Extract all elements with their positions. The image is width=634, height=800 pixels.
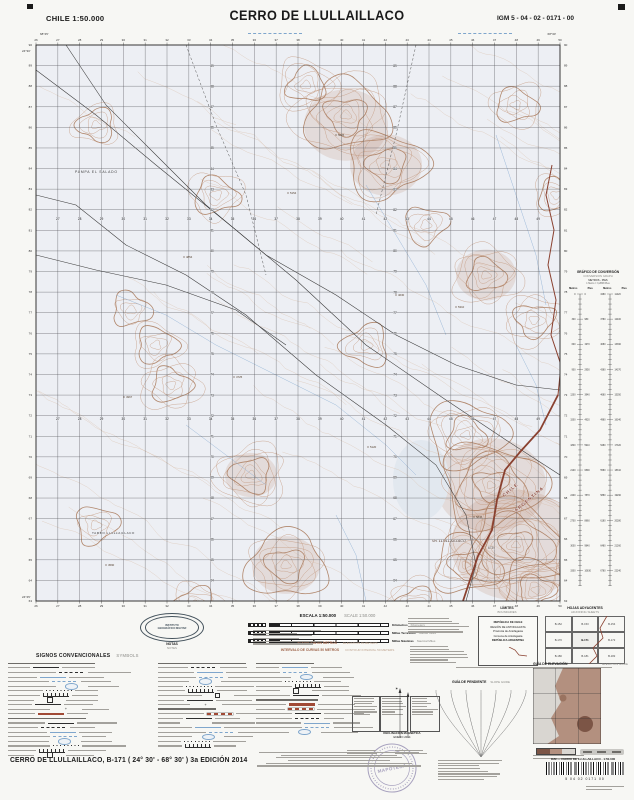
svg-text:43: 43 <box>405 217 409 221</box>
svg-text:300: 300 <box>572 319 577 321</box>
svg-text:31: 31 <box>143 417 147 421</box>
svg-text:72: 72 <box>393 414 397 418</box>
svg-text:6180: 6180 <box>600 520 606 522</box>
svg-text:90: 90 <box>564 43 568 47</box>
svg-text:71: 71 <box>29 434 33 438</box>
svg-text:39: 39 <box>318 417 322 421</box>
svg-text:45: 45 <box>449 417 453 421</box>
svg-text:80: 80 <box>564 249 568 253</box>
conversion-note: 1 Metro = 3,2808 Pies <box>564 282 632 285</box>
svg-text:4590: 4590 <box>108 563 115 567</box>
svg-text:40: 40 <box>340 217 344 221</box>
svg-text:50: 50 <box>558 38 562 42</box>
svg-text:75: 75 <box>29 352 33 356</box>
svg-text:27: 27 <box>56 604 60 608</box>
svg-text:15350: 15350 <box>615 395 622 397</box>
slope-guide-heading: GUÍA DE PENDIENTE SLOPE GUIDE <box>430 680 532 684</box>
svg-text:43: 43 <box>405 604 409 608</box>
svg-text:36: 36 <box>253 217 257 221</box>
svg-text:68: 68 <box>210 496 214 500</box>
svg-text:35: 35 <box>231 604 235 608</box>
svg-text:5005: 5005 <box>338 133 345 137</box>
svg-text:44: 44 <box>427 38 431 42</box>
svg-text:5310: 5310 <box>458 305 465 309</box>
svg-text:77: 77 <box>29 311 33 315</box>
edition-fine-print <box>253 752 425 768</box>
contour-interval-heading: INTERVALO DE CURVAS 50 METROS CONTOUR IN… <box>250 648 425 652</box>
svg-text:89: 89 <box>29 64 33 68</box>
svg-text:87: 87 <box>393 105 397 109</box>
svg-text:44: 44 <box>427 217 431 221</box>
igm-seal: INSTITUTOGEOGRÁFICO MILITAR <box>140 613 204 642</box>
svg-text:70: 70 <box>29 455 33 459</box>
svg-text:17320: 17320 <box>615 445 622 447</box>
elevation-ramp <box>536 748 576 755</box>
svg-text:2700: 2700 <box>570 520 576 522</box>
legend-symbols-column-3 <box>256 661 350 735</box>
svg-text:44: 44 <box>427 417 431 421</box>
svg-text:38: 38 <box>296 604 300 608</box>
svg-text:980: 980 <box>585 319 590 321</box>
svg-text:37: 37 <box>274 417 278 421</box>
svg-text:46: 46 <box>471 604 475 608</box>
svg-text:4920: 4920 <box>585 420 591 422</box>
svg-text:29: 29 <box>100 217 104 221</box>
svg-text:41: 41 <box>362 604 366 608</box>
svg-text:27: 27 <box>56 417 60 421</box>
svg-text:64: 64 <box>210 579 214 583</box>
svg-text:87: 87 <box>210 105 214 109</box>
svg-text:90: 90 <box>29 43 33 47</box>
svg-text:5120: 5120 <box>370 445 377 449</box>
svg-text:72: 72 <box>210 414 214 418</box>
svg-text:36: 36 <box>253 604 257 608</box>
svg-text:85: 85 <box>393 146 397 150</box>
svg-text:81: 81 <box>210 229 214 233</box>
svg-text:34: 34 <box>209 38 213 42</box>
svg-text:41: 41 <box>362 417 366 421</box>
svg-text:600: 600 <box>572 344 577 346</box>
svg-text:88: 88 <box>393 84 397 88</box>
svg-text:30: 30 <box>122 217 126 221</box>
svg-text:78: 78 <box>393 290 397 294</box>
svg-text:74: 74 <box>29 372 33 376</box>
svg-text:19290: 19290 <box>615 495 622 497</box>
svg-text:45: 45 <box>449 604 453 608</box>
svg-text:4980: 4980 <box>600 420 606 422</box>
svg-text:41: 41 <box>362 217 366 221</box>
svg-text:42: 42 <box>384 417 388 421</box>
declination-note-box <box>352 696 380 732</box>
svg-text:1970: 1970 <box>585 344 591 346</box>
svg-text:32: 32 <box>165 217 169 221</box>
footer-sticker <box>580 749 624 755</box>
svg-text:85: 85 <box>210 146 214 150</box>
svg-text:38: 38 <box>296 417 300 421</box>
svg-text:76: 76 <box>393 331 397 335</box>
svg-text:49: 49 <box>536 604 540 608</box>
svg-text:33: 33 <box>187 604 191 608</box>
svg-text:14370: 14370 <box>615 369 622 371</box>
svg-text:5880: 5880 <box>600 495 606 497</box>
svg-text:81: 81 <box>564 228 568 232</box>
svg-text:74: 74 <box>393 373 397 377</box>
svg-text:84: 84 <box>564 167 568 171</box>
svg-text:39: 39 <box>318 217 322 221</box>
barcode <box>546 762 624 775</box>
svg-text:43: 43 <box>405 38 409 42</box>
svg-text:28: 28 <box>78 38 82 42</box>
svg-text:83: 83 <box>393 187 397 191</box>
elevation-guide-map <box>533 668 601 744</box>
svg-text:68: 68 <box>29 496 33 500</box>
svg-text:69: 69 <box>29 475 33 479</box>
fine-print-block <box>438 760 508 782</box>
svg-text:81: 81 <box>29 228 33 232</box>
svg-text:44: 44 <box>427 604 431 608</box>
svg-text:2400: 2400 <box>570 495 576 497</box>
svg-text:49: 49 <box>536 217 540 221</box>
svg-text:✶: ✶ <box>395 686 398 691</box>
svg-text:11420: 11420 <box>615 294 622 296</box>
barcode-label: IGM — CERRO DE LLULLAILLACO - 1:50.000 <box>538 757 628 761</box>
svg-text:5154: 5154 <box>290 191 297 195</box>
svg-text:73: 73 <box>210 393 214 397</box>
svg-text:86: 86 <box>210 126 214 130</box>
svg-text:37: 37 <box>274 604 278 608</box>
svg-text:29: 29 <box>100 417 104 421</box>
legend-symbols-column-1: + <box>8 661 156 757</box>
svg-text:3000: 3000 <box>570 545 576 547</box>
svg-text:29: 29 <box>100 38 104 42</box>
svg-text:26: 26 <box>34 604 38 608</box>
conversion-subtitle: CONVERSION GRAPH <box>564 274 632 278</box>
svg-text:67: 67 <box>29 517 33 521</box>
svg-text:3300: 3300 <box>570 571 576 573</box>
svg-text:30: 30 <box>122 417 126 421</box>
svg-text:32: 32 <box>165 604 169 608</box>
svg-text:65: 65 <box>210 558 214 562</box>
svg-text:69: 69 <box>210 476 214 480</box>
corner-registration-mark <box>618 4 625 10</box>
svg-text:900: 900 <box>572 369 577 371</box>
adjoining-sheets-heading: HOJAS ADYACENTES ADJOINING SHEETS <box>543 606 627 614</box>
svg-text:3940: 3940 <box>585 395 591 397</box>
svg-text:72: 72 <box>29 414 33 418</box>
svg-text:71: 71 <box>210 434 214 438</box>
svg-text:20280: 20280 <box>615 520 622 522</box>
svg-text:40: 40 <box>340 417 344 421</box>
svg-text:67: 67 <box>210 517 214 521</box>
fine-print-block <box>410 646 468 665</box>
boundary-sketch-line <box>479 647 537 657</box>
svg-text:82: 82 <box>564 208 568 212</box>
svg-text:66: 66 <box>29 537 33 541</box>
svg-text:4080: 4080 <box>600 344 606 346</box>
svg-text:46: 46 <box>471 417 475 421</box>
svg-text:82: 82 <box>210 208 214 212</box>
svg-text:9840: 9840 <box>585 545 591 547</box>
boundaries-heading: LÍMITES BOUNDARIES <box>478 606 536 614</box>
svg-text:68°30': 68°30' <box>548 32 557 36</box>
svg-text:18310: 18310 <box>615 470 622 472</box>
map-sheet: CHILE 1:50.000 CERRO DE LLULLAILLACO IGM… <box>0 0 634 800</box>
svg-text:4630: 4630 <box>398 293 405 297</box>
scale-heading: ESCALA 1:50.000 SCALE 1:50.000 <box>250 613 425 618</box>
svg-text:41: 41 <box>362 38 366 42</box>
svg-text:85: 85 <box>29 146 33 150</box>
svg-text:6480: 6480 <box>600 545 606 547</box>
svg-text:16340: 16340 <box>615 420 622 422</box>
svg-text:83: 83 <box>210 187 214 191</box>
svg-text:32: 32 <box>165 417 169 421</box>
svg-text:69: 69 <box>393 476 397 480</box>
svg-text:31: 31 <box>143 38 147 42</box>
svg-text:6890: 6890 <box>585 470 591 472</box>
svg-text:88: 88 <box>210 84 214 88</box>
svg-text:1500: 1500 <box>570 420 576 422</box>
svg-text:47: 47 <box>493 417 497 421</box>
svg-text:5280: 5280 <box>600 445 606 447</box>
fine-print-block <box>408 618 472 634</box>
svg-text:30: 30 <box>122 604 126 608</box>
svg-text:47: 47 <box>493 217 497 221</box>
svg-text:36: 36 <box>253 38 257 42</box>
svg-text:27: 27 <box>56 38 60 42</box>
svg-text:79: 79 <box>210 270 214 274</box>
svg-text:35: 35 <box>231 217 235 221</box>
svg-text:48: 48 <box>515 417 519 421</box>
svg-text:36: 36 <box>253 417 257 421</box>
svg-text:Vn. LLULLAILLACO: Vn. LLULLAILLACO <box>432 539 466 543</box>
svg-text:73: 73 <box>393 393 397 397</box>
svg-text:79: 79 <box>393 270 397 274</box>
svg-text:85: 85 <box>564 146 568 150</box>
svg-text:1200: 1200 <box>570 395 576 397</box>
legend-heading: SIGNOS CONVENCIONALESSYMBOLS <box>36 653 139 659</box>
svg-text:28: 28 <box>78 217 82 221</box>
svg-text:45: 45 <box>449 217 453 221</box>
svg-text:38: 38 <box>296 217 300 221</box>
svg-text:66: 66 <box>393 537 397 541</box>
svg-text:42: 42 <box>384 604 388 608</box>
svg-text:13390: 13390 <box>615 344 622 346</box>
svg-text:46: 46 <box>471 217 475 221</box>
svg-text:8860: 8860 <box>585 520 591 522</box>
svg-text:86: 86 <box>564 125 568 129</box>
svg-text:88: 88 <box>29 84 33 88</box>
svg-text:84: 84 <box>29 167 33 171</box>
svg-text:77: 77 <box>210 311 214 315</box>
svg-text:26: 26 <box>34 38 38 42</box>
svg-text:67: 67 <box>393 517 397 521</box>
svg-text:89: 89 <box>393 64 397 68</box>
svg-text:4680: 4680 <box>600 395 606 397</box>
notes-fine-print <box>253 630 331 646</box>
svg-text:84: 84 <box>210 167 214 171</box>
svg-text:78: 78 <box>29 290 33 294</box>
svg-text:86: 86 <box>393 126 397 130</box>
svg-text:65: 65 <box>29 558 33 562</box>
svg-text:83: 83 <box>29 187 33 191</box>
svg-text:0: 0 <box>585 294 587 296</box>
svg-text:79: 79 <box>29 270 33 274</box>
svg-text:63: 63 <box>29 599 33 603</box>
svg-text:49: 49 <box>536 38 540 42</box>
svg-text:48: 48 <box>515 217 519 221</box>
conversion-graph-panel: GRÁFICO DE CONVERSIÓN CONVERSION GRAPH M… <box>564 270 632 605</box>
svg-text:37: 37 <box>274 38 278 42</box>
svg-text:28: 28 <box>78 417 82 421</box>
svg-text:0: 0 <box>574 294 576 296</box>
svg-text:80: 80 <box>393 249 397 253</box>
svg-text:89: 89 <box>564 64 568 68</box>
svg-text:70: 70 <box>393 455 397 459</box>
conversion-rulers: 0030098060019709002950120039401500492018… <box>564 290 632 600</box>
svg-text:4725: 4725 <box>236 375 243 379</box>
svg-text:33: 33 <box>187 217 191 221</box>
topographic-map-canvas: 2728293031323334353637383940414243444546… <box>10 28 624 614</box>
svg-text:10830: 10830 <box>585 571 592 573</box>
svg-text:5580: 5580 <box>600 470 606 472</box>
svg-text:24°45': 24°45' <box>22 595 31 599</box>
svg-text:6780: 6780 <box>600 571 606 573</box>
svg-text:49: 49 <box>536 417 540 421</box>
svg-text:4854: 4854 <box>186 255 193 259</box>
svg-text:82: 82 <box>29 208 33 212</box>
svg-text:1800: 1800 <box>570 445 576 447</box>
svg-text:3780: 3780 <box>600 319 606 321</box>
svg-text:45: 45 <box>449 38 453 42</box>
svg-text:80: 80 <box>210 249 214 253</box>
svg-text:87: 87 <box>29 105 33 109</box>
boundaries-box: REPÚBLICA DE CHILE REGIÓN DE ANTOFAGASTA… <box>478 616 538 666</box>
svg-text:40: 40 <box>340 38 344 42</box>
svg-text:34: 34 <box>209 604 213 608</box>
svg-text:39: 39 <box>318 38 322 42</box>
svg-text:47: 47 <box>493 38 497 42</box>
svg-text:74: 74 <box>210 373 214 377</box>
svg-text:33: 33 <box>187 38 191 42</box>
svg-text:38: 38 <box>296 38 300 42</box>
svg-text:2100: 2100 <box>570 470 576 472</box>
svg-text:42: 42 <box>384 38 388 42</box>
svg-text:37: 37 <box>274 217 278 221</box>
svg-text:68°45': 68°45' <box>40 32 49 36</box>
svg-text:30: 30 <box>122 38 126 42</box>
svg-text:87: 87 <box>564 105 568 109</box>
svg-text:64: 64 <box>29 578 33 582</box>
svg-text:7870: 7870 <box>585 495 591 497</box>
notes-heading: NOTAS NOTES <box>152 642 192 650</box>
svg-text:35: 35 <box>231 417 235 421</box>
svg-text:70: 70 <box>210 455 214 459</box>
svg-text:24°30': 24°30' <box>22 49 31 53</box>
svg-text:33: 33 <box>187 417 191 421</box>
svg-text:22240: 22240 <box>615 571 622 573</box>
svg-text:80: 80 <box>29 249 33 253</box>
svg-text:64: 64 <box>393 579 397 583</box>
svg-text:5910: 5910 <box>585 445 591 447</box>
svg-text:78: 78 <box>210 290 214 294</box>
svg-text:5845: 5845 <box>476 515 483 519</box>
svg-text:88: 88 <box>564 84 568 88</box>
svg-text:65: 65 <box>393 558 397 562</box>
footer-sheet-reference: CERRO DE LLULLAILLACO, B-171 ( 24° 30' -… <box>10 757 247 764</box>
svg-text:76: 76 <box>29 331 33 335</box>
svg-text:77: 77 <box>393 311 397 315</box>
slope-guide-fan <box>428 687 534 759</box>
svg-text:76: 76 <box>210 331 214 335</box>
svg-text:4380: 4380 <box>600 369 606 371</box>
svg-text:46: 46 <box>471 38 475 42</box>
barcode-digits: 5 04 02 0171 00 <box>546 777 624 781</box>
fine-print-block <box>586 786 624 791</box>
svg-text:6739: 6739 <box>488 546 495 550</box>
svg-text:4967: 4967 <box>126 395 133 399</box>
svg-text:31: 31 <box>143 217 147 221</box>
svg-text:66: 66 <box>210 537 214 541</box>
svg-text:3480: 3480 <box>600 294 606 296</box>
svg-text:75: 75 <box>210 352 214 356</box>
svg-text:86: 86 <box>29 125 33 129</box>
svg-text:34: 34 <box>209 217 213 221</box>
svg-text:32: 32 <box>165 38 169 42</box>
svg-text:29: 29 <box>100 604 104 608</box>
svg-text:48: 48 <box>515 38 519 42</box>
svg-text:2950: 2950 <box>585 369 591 371</box>
svg-text:82: 82 <box>393 208 397 212</box>
svg-text:73: 73 <box>29 393 33 397</box>
adjoining-sheets-border-line <box>545 616 625 664</box>
svg-text:71: 71 <box>393 434 397 438</box>
svg-text:42: 42 <box>384 217 388 221</box>
svg-text:84: 84 <box>393 167 397 171</box>
svg-text:27: 27 <box>56 217 60 221</box>
svg-text:83: 83 <box>564 187 568 191</box>
svg-text:68: 68 <box>393 496 397 500</box>
svg-text:75: 75 <box>393 352 397 356</box>
svg-text:81: 81 <box>393 229 397 233</box>
sheet-code: IGM 5 - 04 - 02 - 0171 - 00 <box>497 15 574 22</box>
svg-text:43: 43 <box>405 417 409 421</box>
svg-text:39: 39 <box>318 604 322 608</box>
elevation-guide-heading: GUÍA DE ELEVACIÓN ELEVATION GUIDE <box>533 662 628 666</box>
svg-text:31: 31 <box>143 604 147 608</box>
svg-text:12400: 12400 <box>615 319 622 321</box>
svg-text:TAMBO LLULLAILLACO: TAMBO LLULLAILLACO <box>92 531 135 535</box>
svg-text:21260: 21260 <box>615 545 622 547</box>
svg-text:PAMPA EL SALADO: PAMPA EL SALADO <box>75 170 118 174</box>
svg-text:35: 35 <box>231 38 235 42</box>
svg-text:28: 28 <box>78 604 82 608</box>
svg-text:40: 40 <box>340 604 344 608</box>
svg-text:89: 89 <box>210 64 214 68</box>
